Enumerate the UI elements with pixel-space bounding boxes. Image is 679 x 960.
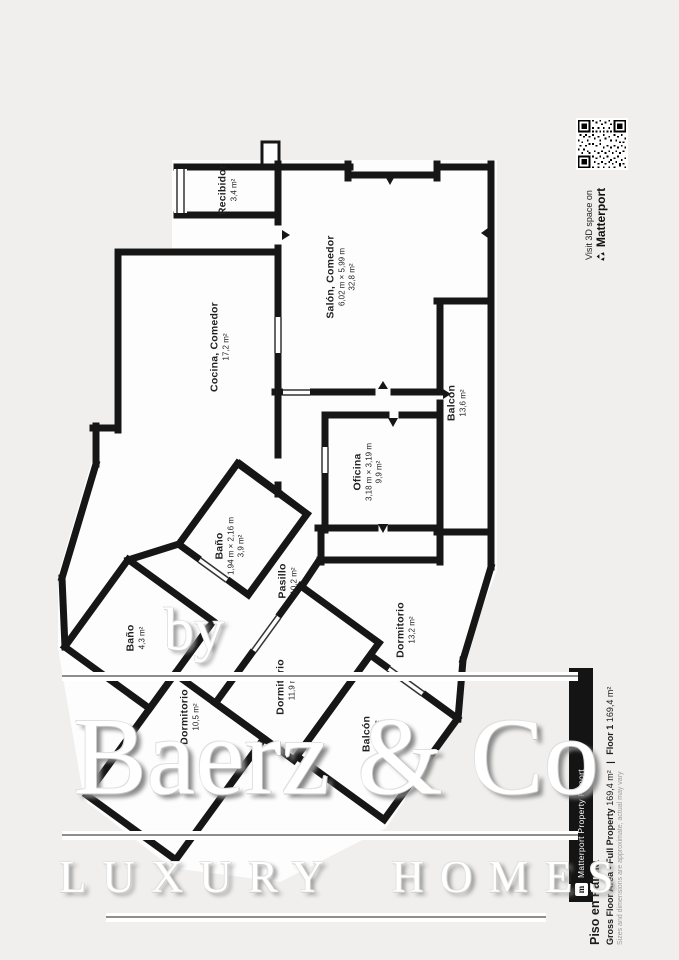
room-label-bano-43: Baño 4,3 m² xyxy=(124,624,147,651)
room-label-oficina: Oficina 3,18 m × 3,19 m 9,9 m² xyxy=(351,443,384,501)
watermark-line xyxy=(106,913,546,922)
watermark-tagline: LUXURY HOMES xyxy=(59,851,629,903)
room-label-pasillo: Pasillo 10,2 m² xyxy=(276,563,299,598)
watermark-line xyxy=(62,831,578,840)
matterport-wordmark: Matterport xyxy=(594,188,608,247)
room-label-salon-comedor: Salón, Comedor 6,02 m × 5,99 m 32,8 m² xyxy=(324,235,357,318)
watermark-line xyxy=(62,672,578,681)
floor-label: Floor 1 xyxy=(605,725,615,755)
matterport-logo-icon xyxy=(596,251,607,262)
watermark-brand: Baerz & Co xyxy=(73,694,598,821)
gross-floor-area-value: 169,4 m² xyxy=(605,770,615,806)
room-label-bano-39: Baño 1,94 m × 2,16 m 3,9 m² xyxy=(213,517,246,575)
visit-3d-caption: Visit 3D space on Matterport xyxy=(584,150,620,300)
floor-value: 169,4 m² xyxy=(605,687,615,723)
room-label-recibidor: Recibidor 3,4 m² xyxy=(216,165,239,215)
room-label-balcon-13: Balcón 13,6 m² xyxy=(445,385,468,421)
room-label-cocina-comedor: Cocina, Comedor 17,2 m² xyxy=(208,302,231,392)
room-label-dormitorio-132: Dormitorio 13,2 m² xyxy=(394,602,417,658)
floorplan-page: Recibidor 3,4 m² Salón, Comedor 6,02 m ×… xyxy=(0,0,679,960)
watermark-by: by xyxy=(164,596,224,665)
divider: | xyxy=(605,761,615,764)
visit-3d-text: Visit 3D space on xyxy=(584,150,594,300)
